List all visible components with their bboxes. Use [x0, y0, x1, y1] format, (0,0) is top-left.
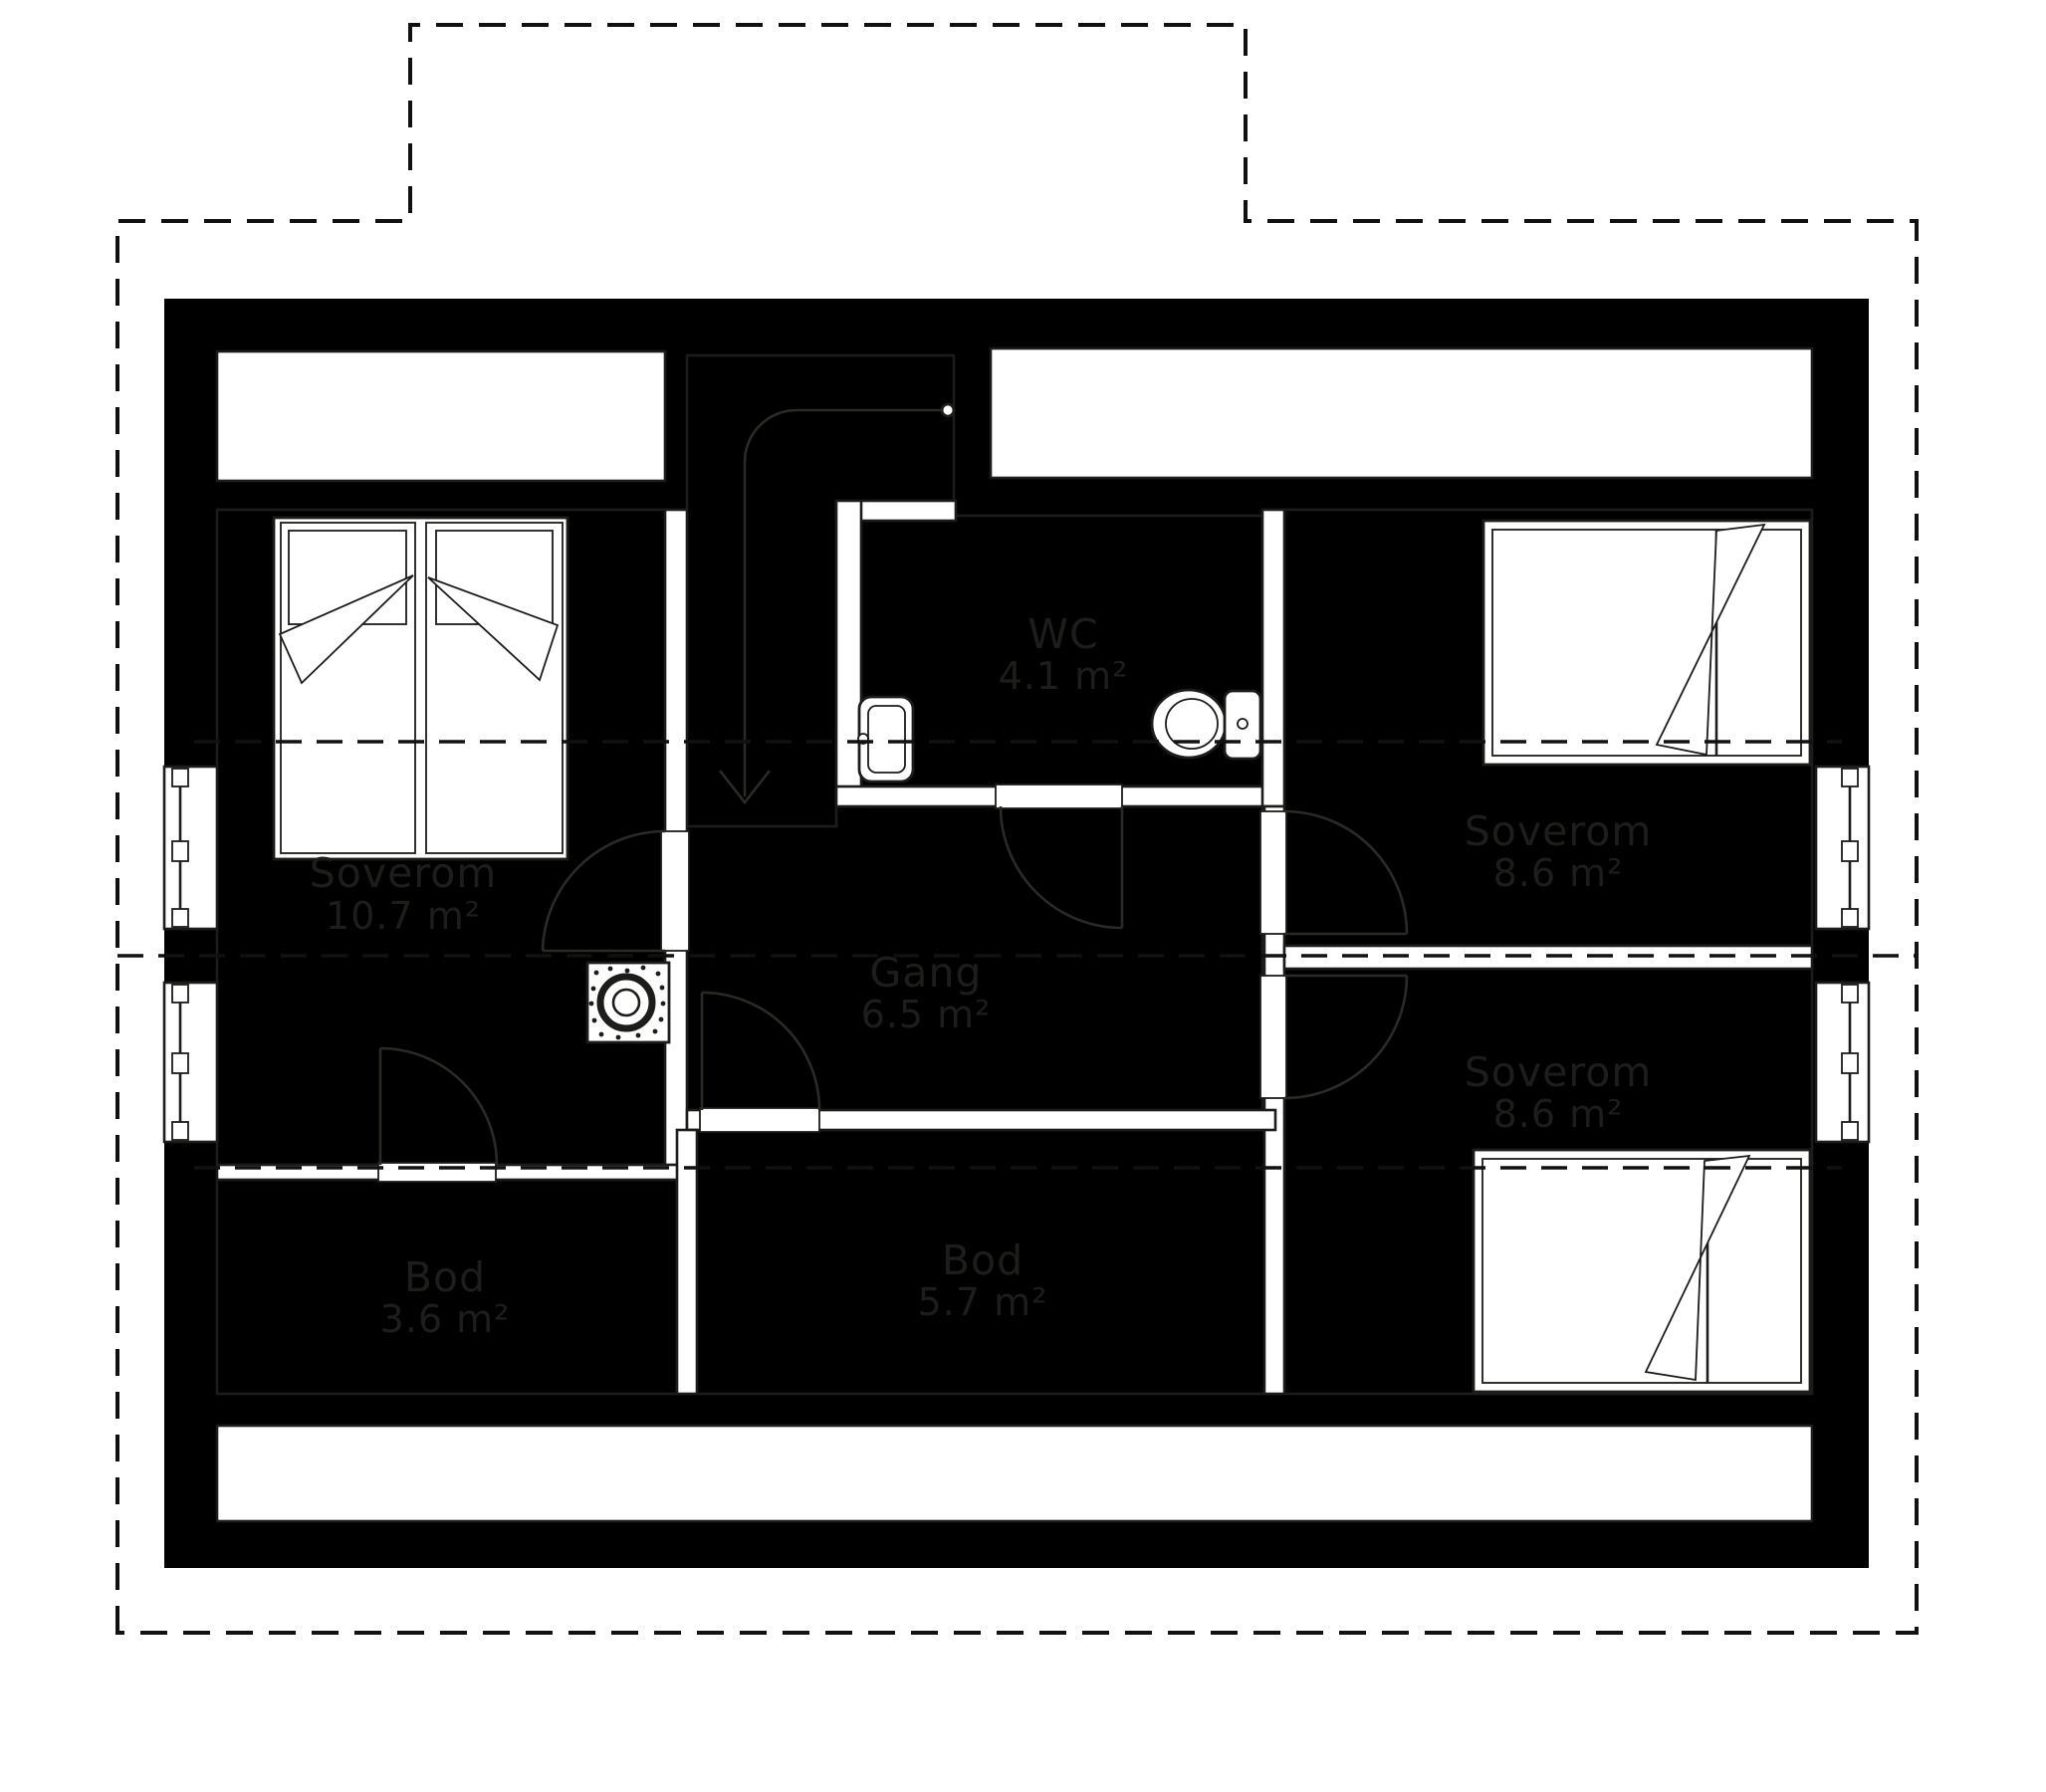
sink [858, 697, 913, 782]
floor-plan: Soverom 10.7 m² WC 4.1 m² Gang 6.5 m² So… [0, 0, 2046, 1792]
wall-wc-east [1262, 510, 1284, 806]
label-soverom-top-right-name: Soverom [1465, 807, 1653, 855]
door-opening-bod-center [700, 1108, 819, 1132]
knee-wall-area-top-right [991, 348, 1812, 478]
label-soverom-bottom-right-area: 8.6 m² [1493, 1092, 1624, 1136]
single-bed-top-right [1483, 521, 1810, 765]
window-left-upper [164, 767, 217, 929]
label-soverom-left-area: 10.7 m² [326, 894, 481, 938]
door-opening-soverom-top-right [1260, 811, 1286, 934]
door-opening-soverom-bottom-right [1260, 976, 1286, 1098]
label-wc-name: WC [1027, 610, 1098, 658]
chimney [587, 963, 669, 1042]
label-soverom-bottom-right-name: Soverom [1465, 1048, 1653, 1096]
label-bod-center-area: 5.7 m² [918, 1280, 1048, 1324]
window-right-lower [1816, 983, 1869, 1142]
toilet [1152, 690, 1260, 759]
window-right-upper [1816, 767, 1869, 929]
door-opening-wc [996, 784, 1122, 808]
single-bed-bottom-right [1474, 1150, 1810, 1392]
walkline-start-circle [942, 404, 954, 416]
door-opening-bod-left [378, 1163, 496, 1182]
toilet-flush-button [1238, 719, 1248, 729]
label-gang-area: 6.5 m² [861, 993, 992, 1036]
label-bod-left-name: Bod [404, 1253, 486, 1301]
label-bod-center-name: Bod [942, 1236, 1023, 1284]
knee-wall-area-bottom [217, 1426, 1812, 1521]
wall-stair-wc-west [836, 501, 861, 806]
knee-wall-area-top-left [217, 351, 665, 481]
single-bed-mattress [1482, 1159, 1801, 1383]
wall-bod-divider [677, 1130, 697, 1394]
label-bod-left-area: 3.6 m² [380, 1297, 511, 1341]
label-soverom-top-right-area: 8.6 m² [1493, 851, 1624, 895]
door-opening-soverom-left [661, 831, 689, 951]
label-wc-area: 4.1 m² [999, 654, 1129, 698]
label-soverom-left-name: Soverom [310, 849, 498, 897]
sink-bowl [868, 706, 905, 773]
label-gang-name: Gang [870, 949, 983, 997]
single-bed-mattress [1492, 530, 1801, 756]
chimney-flue-inner [613, 990, 639, 1015]
double-bed [274, 518, 568, 859]
window-left-lower [164, 983, 217, 1142]
